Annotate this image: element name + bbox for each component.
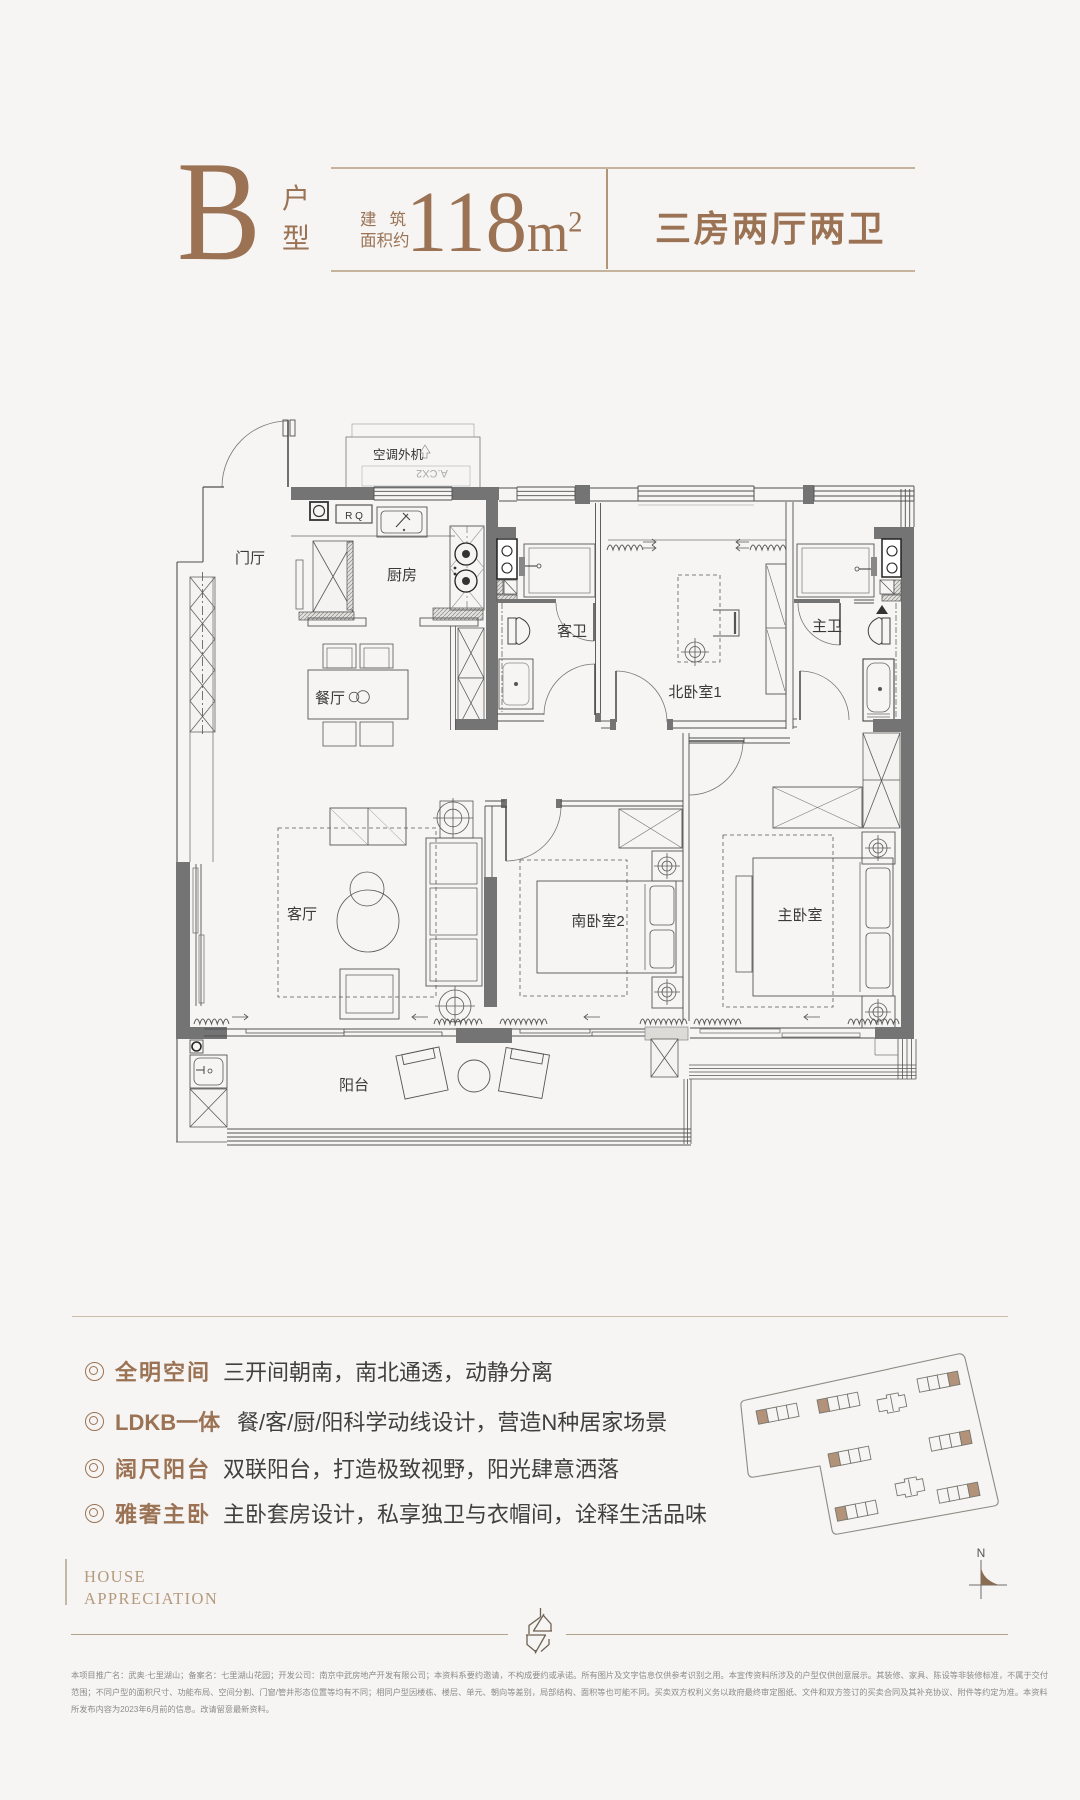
svg-text:N: N [977, 1546, 986, 1560]
svg-text:北卧室1: 北卧室1 [668, 684, 721, 701]
svg-text:空调外机: 空调外机 [373, 448, 424, 462]
svg-text:阳台: 阳台 [339, 1077, 369, 1094]
svg-text:主卧室: 主卧室 [777, 907, 822, 924]
svg-text:厨房: 厨房 [387, 567, 417, 584]
svg-text:客厅: 客厅 [287, 906, 317, 923]
svg-text:R Q: R Q [345, 511, 363, 522]
svg-text:门厅: 门厅 [235, 550, 265, 567]
svg-text:南卧室2: 南卧室2 [571, 913, 624, 930]
svg-text:餐厅: 餐厅 [315, 690, 345, 707]
svg-text:A.CX2: A.CX2 [416, 467, 448, 479]
svg-text:客卫: 客卫 [557, 623, 587, 640]
svg-text:主卫: 主卫 [812, 618, 842, 635]
